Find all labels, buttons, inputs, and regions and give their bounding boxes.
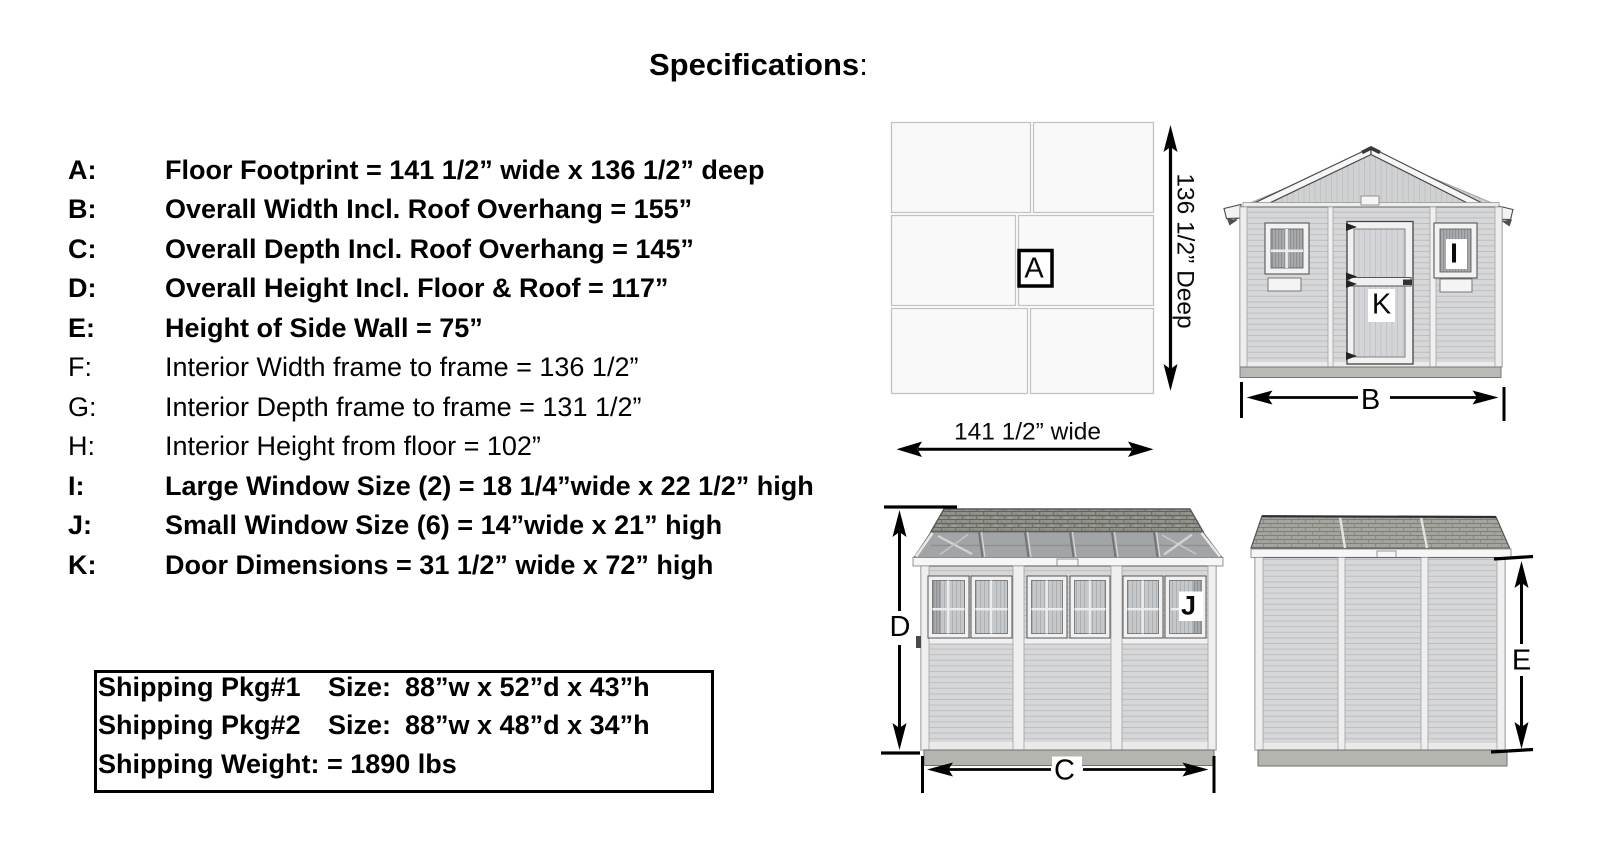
svg-text:136 1/2” Deep: 136 1/2” Deep — [1172, 173, 1199, 328]
svg-text:I: I — [1450, 238, 1458, 269]
svg-text:J: J — [1181, 591, 1196, 621]
svg-text:C: C — [1054, 755, 1075, 787]
svg-text:A: A — [1024, 253, 1044, 285]
svg-text:K: K — [1372, 289, 1392, 321]
svg-text:B: B — [1361, 384, 1380, 416]
svg-text:E: E — [1512, 645, 1531, 677]
svg-text:141 1/2” wide: 141 1/2” wide — [954, 419, 1101, 446]
svg-text:D: D — [890, 611, 911, 643]
